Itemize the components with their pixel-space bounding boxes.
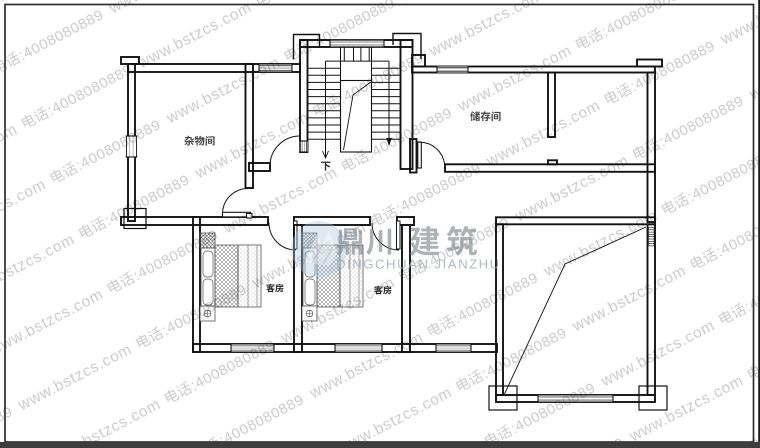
svg-text:®: ® (471, 227, 477, 235)
svg-text:DINGCHUAN JIANZHU: DINGCHUAN JIANZHU (336, 257, 501, 272)
